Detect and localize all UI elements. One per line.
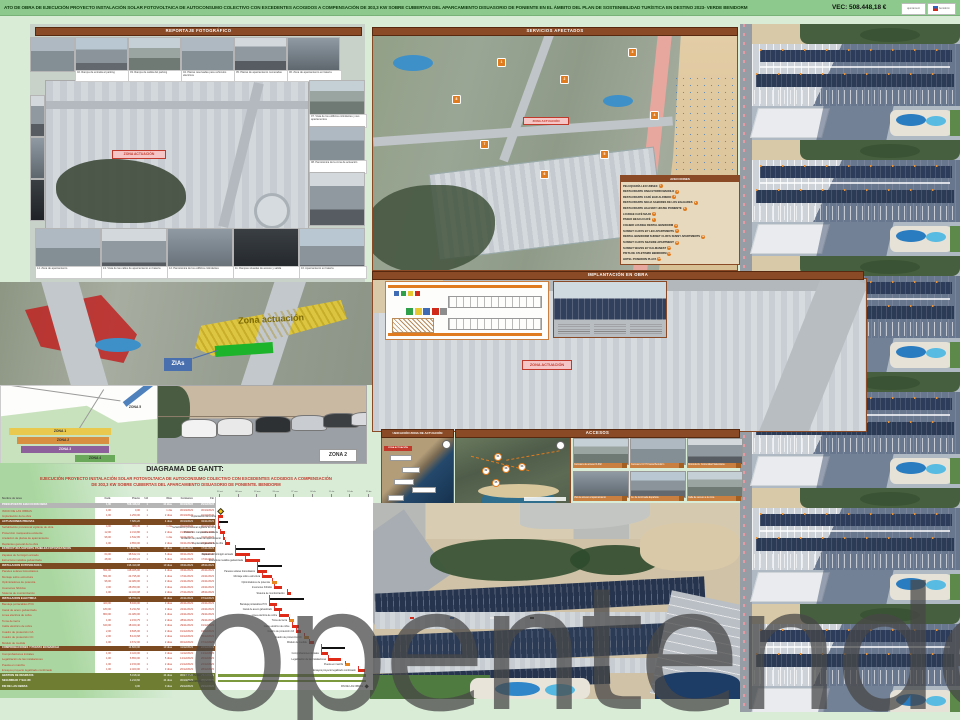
access-photo (630, 471, 686, 498)
map-label-chip (390, 455, 412, 461)
map-label-chip (412, 487, 436, 493)
ubicacion-zone-chip: ZONA ACTUACIÓN (384, 446, 412, 451)
grass-edge (950, 110, 960, 136)
zona5-bar (123, 385, 153, 407)
walkway (760, 182, 950, 184)
sand-patch (752, 24, 807, 46)
route-line (506, 450, 560, 461)
accesos-header: ACCESOS (455, 429, 740, 438)
photo-caption: 13. Vista de las calles de aparcamiento … (101, 266, 169, 279)
zona3-bar: ZONA 3 (21, 446, 109, 453)
afecciones-item-number: 12 (667, 246, 671, 250)
map-marker-6: 6 (540, 170, 549, 179)
project-board: ATO DE OBRA DE EJECUCIÓN PROYECTO INSTAL… (0, 0, 960, 720)
map-attribution (524, 497, 566, 501)
access-photo (573, 438, 629, 465)
afecciones-item-number: 1 (659, 184, 663, 188)
carport-orange-dots (756, 189, 954, 191)
trees-blob (860, 260, 920, 274)
plan-modules (448, 318, 542, 330)
afecciones-item-label: SUNSET CLIFFS BY LEO APARTMENTS (623, 230, 674, 233)
gantt-tick-label: 25 dic (363, 491, 375, 493)
ajuntament-logo-text: ajuntament (907, 7, 920, 10)
road-left (740, 140, 752, 256)
zona5-label: ZONA 5 (115, 405, 155, 409)
gantt-subtitle-1: EJECUCIÓN PROYECTO INSTALACIÓN SOLAR FOT… (2, 476, 370, 481)
plan-container-square (406, 308, 413, 315)
access-photo-caption: Carretera de acceso N-332 (573, 463, 624, 468)
parking-rows (754, 90, 954, 104)
zona1-bar: ZONA 1 (9, 428, 111, 435)
shadow-band (816, 222, 893, 256)
carport-strip (756, 74, 954, 87)
afecciones-item-label: LOUNGE CAFÉ MAJO (623, 213, 651, 216)
crosswalk-dashes (743, 140, 745, 256)
afecciones-item-label: RESTAURANTE HALFWAY HOUSE PONIENTE (623, 207, 682, 210)
map-marker-3: 3 (628, 48, 637, 57)
map-marker-7: 7 (480, 140, 489, 149)
access-marker-05: 05 (492, 479, 500, 487)
access-photo-caption: Rotonda Av. Comunidad Valenciana (687, 463, 738, 468)
afecciones-item-number: 13 (667, 252, 671, 256)
servicios-header: SERVICIOS AFECTADOS (372, 27, 738, 36)
reportaje-header: REPORTAJE FOTOGRÁFICO (35, 27, 362, 36)
gantt-title: DIAGRAMA DE GANTT: (60, 466, 310, 473)
implantacion-header: IMPLANTACIÓN EN OBRA (372, 271, 864, 280)
afecciones-item: PISTA DE ATLETISMO BENIDORM13 (623, 251, 737, 256)
zias-label: ZIAs (164, 358, 192, 371)
access-photo-corner (736, 463, 741, 468)
crosswalk-dashes (743, 24, 745, 140)
afecciones-item-label: RESTAURANTE CAFÉ BAR ALFREDO (623, 196, 671, 199)
photo-thumb (30, 37, 75, 72)
access-marker-03: 03 (502, 465, 510, 473)
afecciones-item: RESTAURANTE HALFWAY HOUSE PONIENTE5 (623, 206, 737, 211)
map-label-chip (388, 495, 404, 501)
pool-blob (95, 338, 141, 352)
afecciones-item-number: 14 (657, 257, 661, 261)
photo-caption: 05. Plazas de aparcamiento numeradas (234, 70, 289, 82)
parked-car (291, 415, 327, 431)
title-bar: ATO DE OBRA DE EJECUCIÓN PROYECTO INSTAL… (0, 0, 960, 16)
afecciones-item: RESTAURANTE SIGUA SABORES DE LOS BALEARE… (623, 200, 737, 205)
photo-thumb (128, 37, 181, 72)
access-photo-caption: Carretera CV-70 hacia Benidorm (630, 463, 681, 468)
photo-thumb (181, 37, 234, 72)
spec-lines (558, 324, 590, 334)
vec-value: VEC: 508.448,18 € (832, 4, 886, 11)
plan-bar-top (388, 285, 542, 288)
access-photo-corner (679, 463, 684, 468)
zona2-photo-label: ZONA 2 (319, 449, 357, 462)
afecciones-item-number: 9 (675, 229, 679, 233)
afecciones-item-label: HOTEL POSEIDON PLAYA (623, 258, 656, 261)
afecciones-item: PELUQUERÍA LEO UNISEX1 (623, 184, 737, 189)
afecciones-item-number: 6 (652, 212, 656, 216)
pool-blob (926, 232, 946, 242)
benidorm-logo-text: benidorm (939, 7, 950, 10)
access-marker-01: 01 (494, 453, 502, 461)
pool-blob (926, 348, 946, 358)
photo-thumb (30, 137, 45, 179)
gantt-tick-label: 06 nov (233, 491, 245, 493)
trees-blob (860, 492, 920, 506)
carport-strip (756, 538, 954, 551)
carport-strip (760, 166, 952, 178)
plan-legend-square (415, 291, 420, 296)
parking-rows (754, 438, 954, 452)
afecciones-item-label: RESTAURANTE SIGUA SABORES DE LOS BALEARE… (623, 201, 693, 204)
plan-container-square (432, 308, 439, 315)
photo-thumb (30, 179, 45, 221)
site-plan-diagram (385, 281, 549, 340)
plan-hatch-block (392, 318, 434, 333)
afecciones-item: PASEO BEACH CAFÉ7 (623, 217, 737, 222)
plan-legend-square (394, 291, 399, 296)
afecciones-item: RENTAL BENIDORM SUNSET CLIFFS SUNNY APAR… (623, 234, 737, 239)
sand-patch (752, 488, 807, 510)
carport-strip (760, 514, 952, 526)
afecciones-item: LOUNGE CAFÉ MAJO6 (623, 212, 737, 217)
gantt-tick-label: 20 nov (270, 491, 282, 493)
walkway (760, 530, 950, 532)
grass-edge (950, 458, 960, 484)
afecciones-item: RESTAURANTE ONGI ETORRI MANOLO2 (623, 189, 737, 194)
zona2-photo: ZONA 2 (157, 385, 367, 464)
access-photo (687, 471, 743, 498)
pool-blob (926, 464, 946, 474)
parked-car (181, 419, 217, 438)
pool-blob (896, 346, 926, 358)
watermark-text: opentenders (186, 552, 960, 720)
photo-thumb (309, 126, 365, 162)
parking-rows (754, 206, 954, 220)
carport-strip (760, 50, 952, 62)
access-photo-corner (736, 496, 741, 501)
afecciones-item-number: 4 (694, 201, 698, 205)
afecciones-item: RESTAURANTE CAFÉ BAR ALFREDO3 (623, 195, 737, 200)
afecciones-item-label: SUNSET WAVES BY KALMANEST (623, 247, 666, 250)
pool-blob (393, 55, 433, 71)
afecciones-item-label: RENTAL BENIDORM SUNSET CLIFFS SUNNY APAR… (623, 235, 700, 238)
access-photo (573, 471, 629, 498)
plan-container-square (423, 308, 430, 315)
pool-blob (896, 462, 926, 474)
map-marker-8: 8 (452, 95, 461, 104)
benidorm-logo: benidorm (927, 3, 956, 15)
photo-caption: 14. Zona de aparcamiento (35, 266, 103, 279)
photo-thumb (309, 80, 365, 116)
carport-orange-dots (756, 73, 954, 75)
access-photo-caption: Calle de acceso a la zona (687, 496, 738, 501)
panel-grid (554, 298, 666, 320)
north-arrow-icon (556, 441, 565, 450)
parked-car (255, 416, 291, 433)
afecciones-item: SUNSET CLIFFS BY LEO APARTMENTS9 (623, 229, 737, 234)
access-photo (687, 438, 743, 465)
afecciones-item-number: 8 (674, 224, 678, 228)
walkway (760, 66, 950, 68)
zona-actuacion-label-reportaje: ZONA ACTUACIÓN (112, 150, 166, 159)
trees-blob (860, 28, 920, 42)
grass-edge (950, 342, 960, 368)
plan-legend-square (401, 291, 406, 296)
carport-orange-dots (756, 537, 954, 539)
diagonal-road (754, 278, 867, 432)
gantt-tick-label: 27 nov (288, 491, 300, 493)
access-photo-corner (622, 463, 627, 468)
trees-blob (56, 159, 186, 223)
pool-blob (603, 95, 633, 107)
carport-orange-dots (760, 165, 952, 167)
trees-blob (860, 376, 920, 390)
afecciones-title: AFECCIONES (621, 176, 739, 182)
beach-rim (478, 484, 559, 498)
trees-blob (372, 185, 495, 271)
access-marker-02: 02 (482, 467, 490, 475)
carport-strip (756, 190, 954, 203)
parked-car (351, 412, 367, 426)
photo-caption: 02. Rampa de entrada al parking (75, 70, 130, 82)
afecciones-item-label: COLIBRI LOUNGE RENTAL BENIDORM (623, 224, 673, 227)
afecciones-item: SUNSET CLIFFS SEASIDE APARTMENT11 (623, 240, 737, 245)
render-tile (740, 140, 960, 256)
afecciones-item-label: SUNSET CLIFFS SEASIDE APARTMENT (623, 241, 674, 244)
zona-actuacion-label-implantacion: ZONA ACTUACIÓN (522, 360, 572, 370)
carport-orange-dots (760, 49, 952, 51)
map-marker-1: 1 (497, 58, 506, 67)
plan-modules (448, 296, 542, 308)
afecciones-item-number: 2 (675, 190, 679, 194)
photo-thumb (287, 37, 340, 72)
afecciones-item: HOTEL POSEIDON PLAYA14 (623, 257, 737, 262)
gantt-tick-label: 04 dic (307, 491, 319, 493)
access-photo-corner (679, 496, 684, 501)
photo-thumb (30, 95, 45, 137)
afecciones-item-label: PELUQUERÍA LEO UNISEX (623, 185, 658, 188)
road-line (2, 385, 121, 401)
afecciones-item: COLIBRI LOUNGE RENTAL BENIDORM8 (623, 223, 737, 228)
photo-caption: 12. Panorámica de los edificios colindan… (167, 266, 235, 279)
plan-bar-bottom (388, 333, 542, 336)
zone-plan: ZONA 5 ZONA 1 ZONA 2 ZONA 3 ZONA 4 (0, 385, 158, 464)
trees-blob (860, 144, 920, 158)
ubicacion-header: UBICACIÓN ZONA DE ACTUACIÓN (381, 429, 454, 438)
helipad-circle (254, 193, 290, 229)
pool-blob (896, 230, 926, 242)
afecciones-item-label: PASEO BEACH CAFÉ (623, 218, 651, 221)
afecciones-item-number: 5 (683, 207, 687, 211)
afecciones-item-number: 3 (672, 195, 676, 199)
map-marker-4: 4 (650, 111, 659, 120)
carport-orange-dots (760, 513, 952, 515)
afecciones-legend: AFECCIONES PELUQUERÍA LEO UNISEX1RESTAUR… (620, 175, 740, 265)
map-label-chip (402, 467, 420, 473)
pool-blob (926, 116, 946, 126)
road-band (499, 34, 555, 162)
plan-container-square (415, 308, 422, 315)
photo-caption: 04. Plazas reservadas para vehículos elé… (181, 70, 236, 82)
plan-container-square (440, 308, 447, 315)
afecciones-item-number: 10 (701, 235, 705, 239)
map-label-chip (394, 479, 414, 485)
afecciones-item-number: 7 (652, 218, 656, 222)
project-title: ATO DE OBRA DE EJECUCIÓN PROYECTO INSTAL… (4, 5, 804, 10)
afecciones-item: SUNSET WAVES BY KALMANEST12 (623, 246, 737, 251)
gantt-tick-label: 13 nov (251, 491, 263, 493)
accesos-satellite-map: 0102030405 (455, 436, 571, 505)
road-left (740, 24, 752, 140)
access-photo (630, 438, 686, 465)
afecciones-item-label: RESTAURANTE ONGI ETORRI MANOLO (623, 190, 674, 193)
gantt-subtitle-2: DE 303,3 KW SOBRE CUBIERTAS DEL APARCAMI… (2, 482, 370, 487)
shadow-band (816, 454, 893, 488)
map-marker-5: 5 (600, 150, 609, 159)
photo-caption: 11. Rampas situadas de acceso y salida (233, 266, 301, 279)
flag-icon (933, 6, 938, 11)
carport-render-inset (553, 281, 667, 338)
photo-caption: 03. Rampa de salida del parking (128, 70, 183, 82)
access-photo-caption: Vial de acceso al aparcamiento (573, 496, 624, 501)
road-band (46, 101, 308, 109)
access-photo-corner (622, 496, 627, 501)
north-arrow-icon (442, 440, 451, 449)
photo-thumb (75, 37, 128, 72)
grass-edge (950, 226, 960, 252)
reportaje-aerial-photo (45, 80, 309, 230)
afecciones-item-label: PISTA DE ATLETISMO BENIDORM (623, 252, 666, 255)
map-marker-2: 2 (560, 75, 569, 84)
gantt-tick-label: 18 dic (344, 491, 356, 493)
zona4-bar: ZONA 4 (75, 455, 115, 462)
aerial-overlay-strip: Zona actuación ZIAs (0, 282, 380, 385)
parked-car (217, 418, 253, 436)
sand-patch (752, 140, 807, 162)
ajuntament-logo: ajuntament (901, 3, 926, 15)
photo-thumb (309, 172, 365, 226)
photo-caption: 16. Aparcamiento en batería (299, 266, 367, 279)
zona2-bar: ZONA 2 (17, 437, 109, 444)
spec-lines (594, 324, 626, 334)
afecciones-item-number: 11 (675, 241, 679, 245)
spec-lines (630, 324, 662, 334)
gantt-tick-label: 11 dic (326, 491, 338, 493)
render-tile (740, 24, 960, 140)
access-marker-04: 04 (518, 463, 526, 471)
pool-blob (896, 114, 926, 126)
plan-legend-square (408, 291, 413, 296)
shadow-band (816, 106, 893, 140)
access-photo-caption: Av. de la Armada Española (630, 496, 681, 501)
zona-actuacion-label-servicios: ZONA ACTUACIÓN (523, 117, 569, 125)
photo-thumb (234, 37, 287, 72)
